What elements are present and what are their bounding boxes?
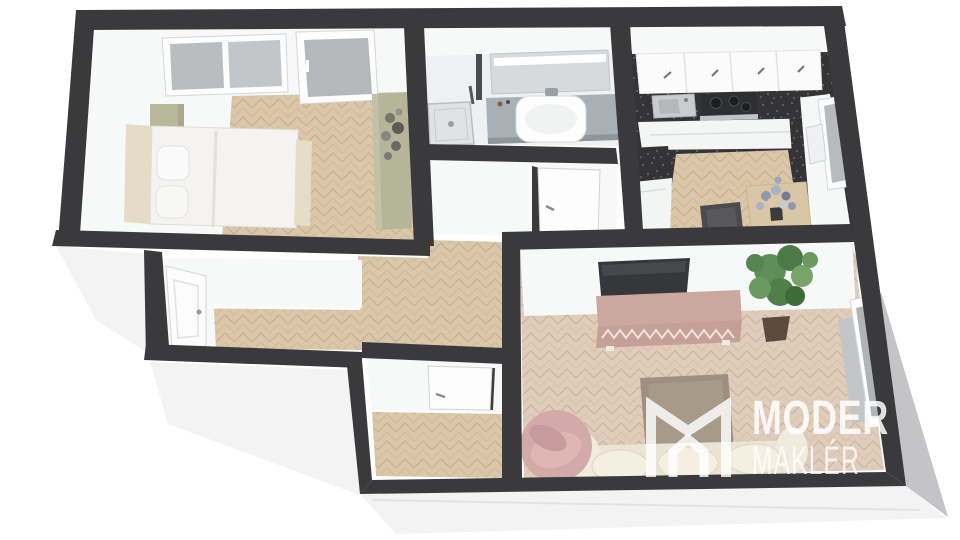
bed-foot-bench	[294, 140, 312, 226]
floor-plan-render: MODER MAKLÉR	[0, 0, 960, 540]
shower-glass-profile	[476, 54, 482, 100]
small-room-door	[428, 366, 495, 410]
room-bathroom	[424, 24, 618, 238]
wall-living-west	[502, 232, 522, 480]
sideboard-chevron	[596, 290, 742, 351]
bedroom-window	[162, 34, 288, 96]
logo-line2: MAKLÉR	[752, 438, 860, 483]
mirror-cabinet	[490, 50, 610, 94]
door-handle	[197, 310, 202, 315]
corridor-floor	[358, 240, 506, 352]
armchair-pink	[520, 410, 592, 482]
small-room-floor	[372, 412, 504, 478]
double-bed	[124, 124, 312, 228]
room-kitchen	[628, 22, 854, 242]
room-bedroom	[78, 26, 416, 242]
bathroom-south-wall-face	[426, 160, 618, 238]
cooktop	[700, 92, 758, 121]
open-casement	[806, 124, 826, 164]
room-small	[366, 358, 504, 478]
bedroom-glass-door	[296, 30, 378, 104]
floor-plan-canvas: MODER MAKLÉR	[0, 0, 960, 540]
wardrobe-sage	[372, 92, 412, 230]
pillow	[156, 186, 188, 218]
faucet	[545, 88, 558, 96]
middle-room-door	[166, 266, 206, 348]
bathroom-door	[538, 168, 600, 236]
wall-north	[76, 6, 846, 30]
kitchen-sink	[652, 94, 696, 118]
upper-cabinets	[636, 50, 822, 96]
logo-line1: MODER	[752, 392, 889, 445]
room-middle	[152, 258, 362, 352]
pillow	[157, 146, 189, 180]
vase	[770, 207, 783, 221]
